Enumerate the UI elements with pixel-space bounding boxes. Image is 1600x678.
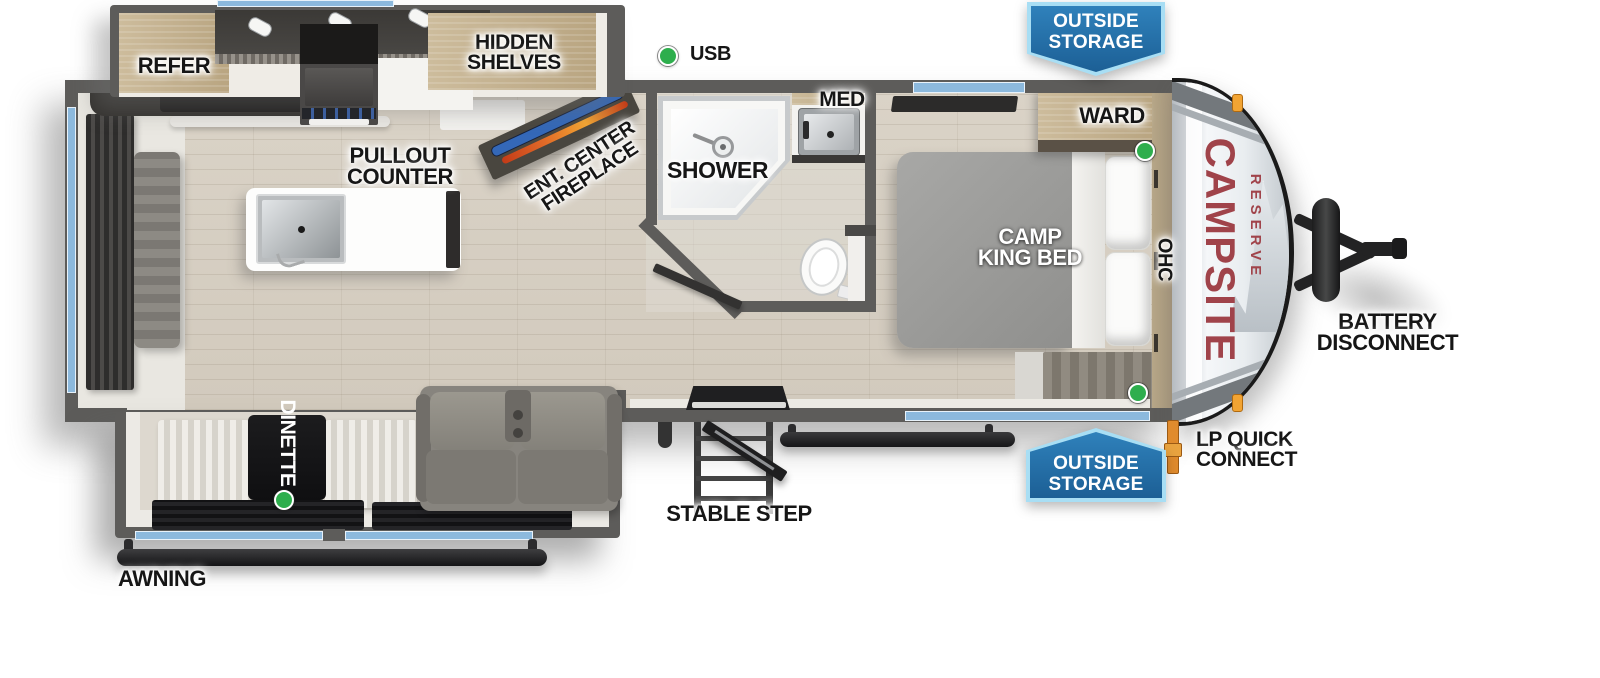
- kitchen-window: [217, 0, 394, 7]
- green-indicator-dot: [1135, 141, 1155, 161]
- sofa-back-cushion: [520, 392, 605, 450]
- awning-label: AWNING: [118, 569, 206, 590]
- outside-storage-label-line2: STORAGE: [1048, 474, 1143, 495]
- hitch-coupler: [1392, 238, 1407, 259]
- outside-storage-badge-top: OUTSIDE STORAGE: [1027, 2, 1165, 76]
- refer-label: REFER: [119, 56, 229, 77]
- pullout-counter-label: PULLOUT COUNTER: [330, 146, 470, 188]
- battery-disconnect-label: BATTERY DISCONNECT: [1295, 312, 1480, 354]
- rear-tv-console: [86, 114, 134, 390]
- island-sink-drain: [298, 226, 305, 233]
- floor-mat: [152, 500, 364, 530]
- oven-door: [305, 68, 373, 106]
- brand-reserve: RESERVE: [1244, 152, 1264, 302]
- shower-head-dot: [720, 144, 726, 150]
- bedroom-tv-shelf: [891, 96, 1018, 112]
- sofa-seat-cushion: [518, 450, 608, 504]
- outside-storage-label-line1: OUTSIDE: [1053, 453, 1139, 474]
- ohc-label: OHC: [1155, 225, 1174, 295]
- usb-indicator-dot: [658, 46, 678, 66]
- outside-storage-label-line2: STORAGE: [1048, 32, 1143, 53]
- stove: [300, 24, 378, 125]
- floorplan-canvas: CAMPSITE RESERVE OUTSIDE STORAGE OUTSIDE…: [0, 0, 1600, 678]
- theater-seating: [420, 386, 618, 511]
- top-wall: [612, 80, 1178, 93]
- dinette-booth-left: [158, 420, 250, 508]
- stove-top: [300, 24, 378, 64]
- burner-strip: [302, 108, 376, 119]
- bathroom-wall-left: [646, 93, 657, 225]
- med-label: MED: [807, 90, 877, 110]
- outside-storage-label-line1: OUTSIDE: [1053, 11, 1139, 32]
- door-hinge: [658, 422, 672, 448]
- bathroom-wall-bottom: [738, 301, 876, 312]
- pillow: [1105, 252, 1151, 346]
- ohc-handle: [1154, 334, 1158, 352]
- sofa-seat-cushion: [426, 450, 516, 504]
- cup-holder: [513, 428, 523, 438]
- awning-bar: [117, 549, 547, 566]
- entry-threshold: [692, 402, 786, 408]
- clearance-light-icon: [1232, 394, 1243, 412]
- bathroom-wall-right: [865, 93, 876, 312]
- dinette-booth-right: [325, 420, 417, 508]
- hidden-shelves-label: HIDDEN SHELVES: [430, 33, 598, 73]
- oven-drawer: [309, 119, 369, 125]
- cup-holder: [513, 410, 523, 420]
- sofa-back-cushion: [430, 392, 515, 450]
- rear-window: [67, 107, 76, 393]
- bath-sink-drain: [827, 131, 834, 138]
- brand-campsite: CAMPSITE: [1200, 110, 1244, 390]
- outside-storage-badge-bottom: OUTSIDE STORAGE: [1026, 428, 1166, 502]
- island-end-panel: [446, 191, 460, 268]
- door-side-awning-bar: [780, 432, 1015, 447]
- ohc-handle: [1154, 170, 1158, 188]
- toilet-seat: [805, 244, 844, 290]
- bath-faucet-icon: [803, 121, 809, 139]
- linen-niche: [848, 236, 866, 302]
- bathroom-wall-stub: [845, 225, 876, 236]
- bedroom-window-top: [913, 82, 1025, 93]
- dinette-label: DINETTE: [277, 383, 297, 503]
- bedroom-window-bottom: [905, 411, 1150, 421]
- front-cap: CAMPSITE RESERVE: [1172, 78, 1294, 426]
- sofa-armrest-right: [607, 394, 622, 502]
- clearance-light-icon: [1232, 94, 1243, 112]
- stable-step-label: STABLE STEP: [664, 504, 814, 525]
- pillow: [1105, 156, 1151, 250]
- dinette-window: [135, 531, 323, 540]
- green-indicator-dot: [1128, 383, 1148, 403]
- step-rung: [696, 476, 772, 481]
- camp-king-bed-label: CAMP KING BED: [950, 227, 1110, 269]
- vanity-base: [792, 155, 870, 163]
- window-divider: [323, 529, 345, 541]
- rear-cabinet: [134, 152, 180, 348]
- sofa-window: [345, 531, 533, 540]
- entry-door-open: [701, 420, 787, 482]
- hitch-jack: [1312, 198, 1340, 302]
- bath-sink: [798, 108, 860, 156]
- lp-connect-coupler: [1164, 443, 1182, 457]
- ward-label: WARD: [1062, 106, 1162, 127]
- lp-quick-connect-label: LP QUICK CONNECT: [1196, 430, 1297, 470]
- usb-label: USB: [690, 45, 731, 64]
- shower-label: SHOWER: [655, 160, 780, 182]
